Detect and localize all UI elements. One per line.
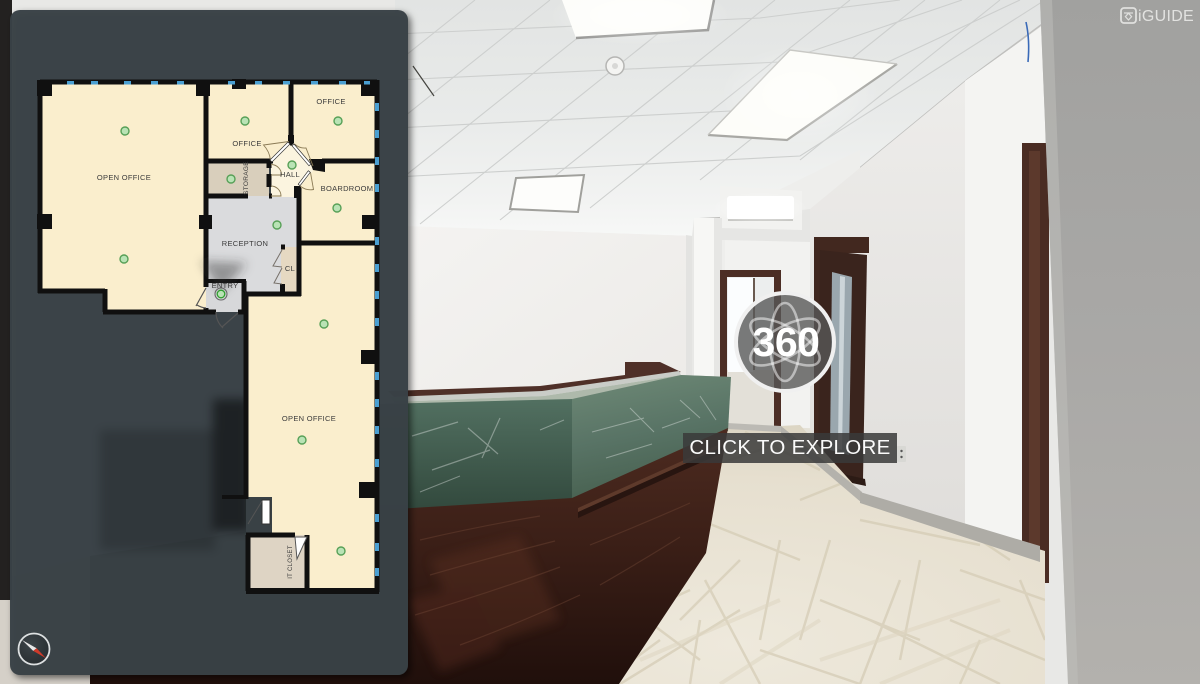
svg-text:OPEN OFFICE: OPEN OFFICE: [282, 414, 336, 423]
svg-text:BOARDROOM: BOARDROOM: [321, 184, 374, 193]
svg-text:OFFICE: OFFICE: [316, 97, 345, 106]
svg-text:CL: CL: [285, 264, 295, 273]
svg-text:ENTRY: ENTRY: [212, 281, 239, 290]
svg-text:HALL: HALL: [280, 170, 300, 179]
svg-text:360: 360: [753, 319, 820, 365]
svg-text:RECEPTION: RECEPTION: [222, 239, 268, 248]
svg-text:STORAGE: STORAGE: [243, 161, 250, 195]
svg-text:CLICK TO EXPLORE: CLICK TO EXPLORE: [689, 436, 890, 459]
svg-text:OPEN OFFICE: OPEN OFFICE: [97, 173, 151, 182]
svg-text:iGUIDE: iGUIDE: [1138, 8, 1194, 25]
svg-text:OFFICE: OFFICE: [232, 139, 261, 148]
svg-text:IT CLOSET: IT CLOSET: [288, 545, 294, 579]
